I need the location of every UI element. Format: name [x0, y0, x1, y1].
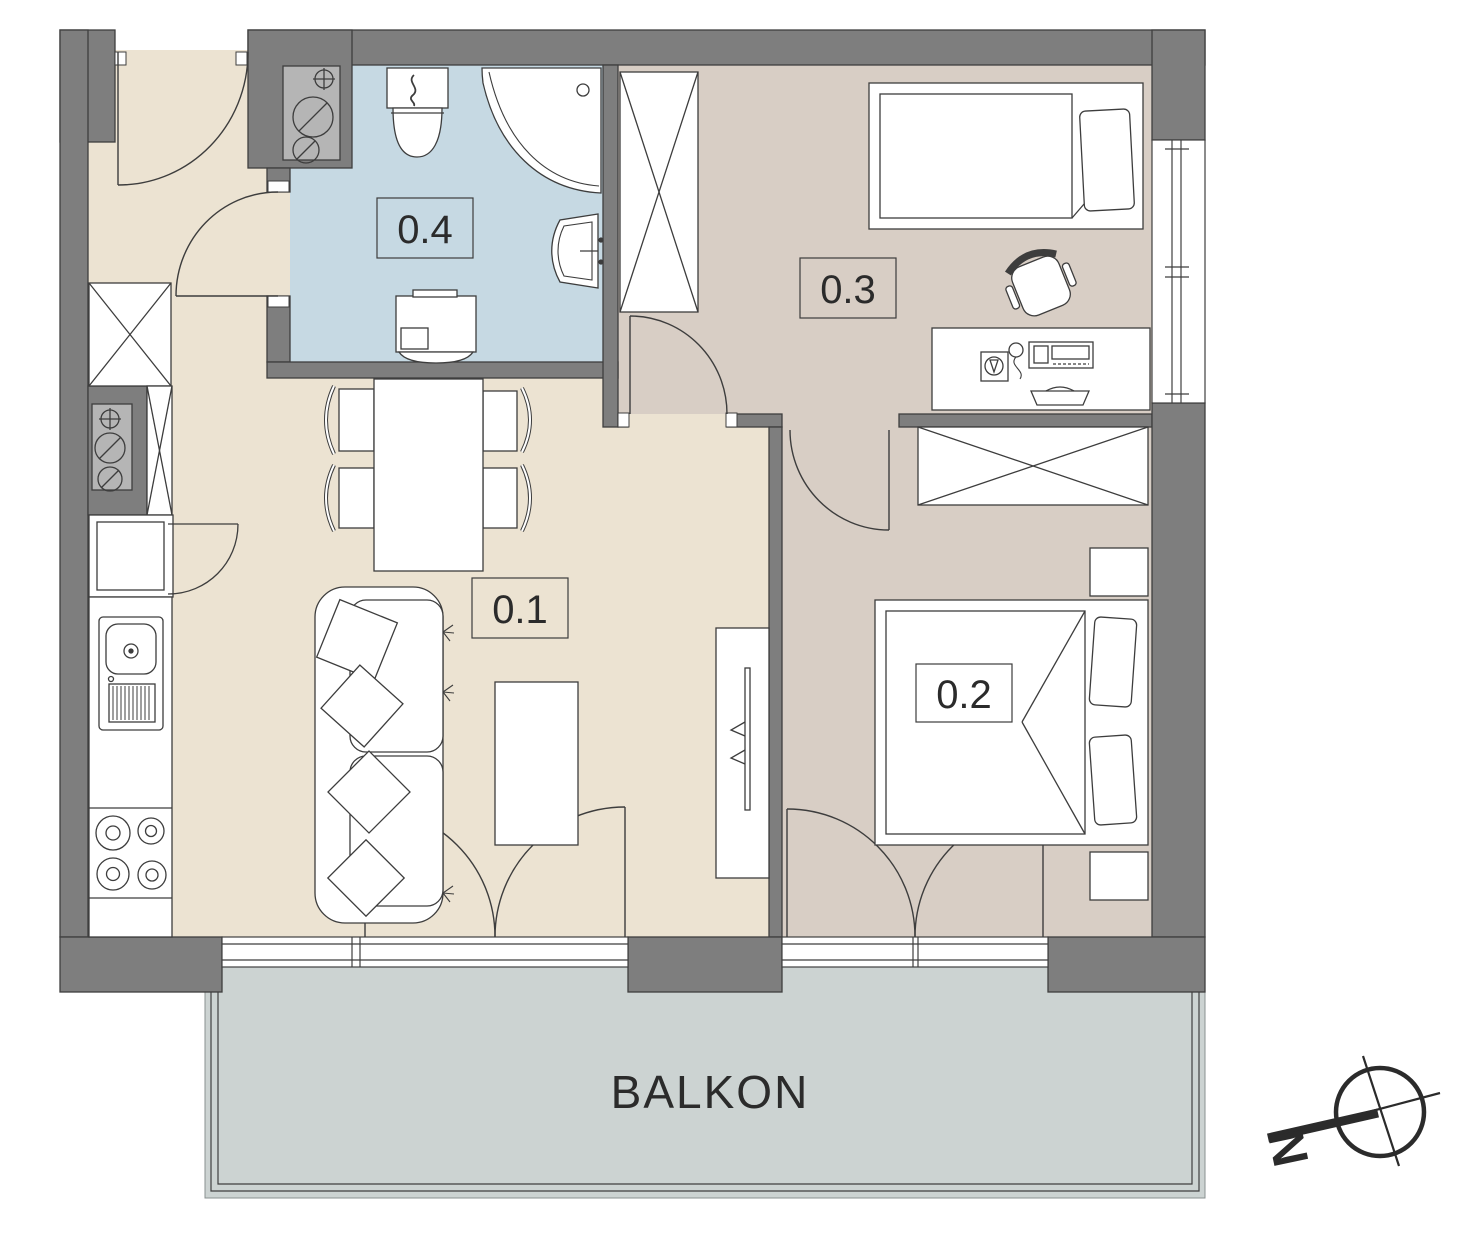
wall-bath-right	[603, 65, 618, 427]
washing-machine-icon	[396, 290, 476, 363]
svg-text:0.3: 0.3	[820, 268, 876, 312]
single-bed-icon	[869, 83, 1143, 229]
wall-band-seg3	[899, 414, 1152, 427]
balcony: BALKON	[205, 967, 1205, 1198]
room-label-0-1: 0.1	[472, 578, 568, 638]
window-right	[1152, 140, 1205, 403]
wall-top	[248, 30, 1205, 65]
room-label-0-2: 0.2	[916, 664, 1012, 722]
kitchen-sink-icon	[99, 617, 163, 730]
floor-plan-page: BALKON	[0, 0, 1482, 1233]
wall-right-lower	[1152, 403, 1205, 937]
wall-left	[60, 30, 88, 937]
tv-lowboard-icon	[716, 628, 769, 878]
nightstand-icon	[1090, 548, 1148, 596]
balcony-door-band-living	[222, 937, 628, 967]
hall-wardrobe-icon	[89, 283, 171, 386]
svg-text:0.2: 0.2	[936, 673, 992, 717]
wall-bottom-left-block	[60, 937, 222, 992]
sofa-icon	[315, 587, 454, 923]
room-label-0-3: 0.3	[800, 258, 896, 318]
nightstand-icon	[1090, 852, 1148, 900]
installation-shaft-kitchen-icon	[92, 404, 132, 491]
wall-divider-0-1-0-2	[769, 427, 782, 937]
tall-cabinet-icon	[147, 386, 172, 515]
washbasin-icon	[552, 214, 603, 288]
wall-bottom-right-block	[1048, 937, 1205, 992]
svg-text:0.1: 0.1	[492, 588, 548, 632]
north-compass-icon: N	[1257, 1056, 1440, 1171]
svg-text:0.4: 0.4	[397, 208, 453, 252]
balcony-label: BALKON	[611, 1066, 810, 1118]
floor-plan: BALKON	[0, 0, 1482, 1233]
room-label-0-4: 0.4	[377, 198, 473, 258]
desk-icon	[932, 328, 1150, 410]
wardrobe-0-2-icon	[918, 427, 1148, 505]
coffee-table-icon	[495, 682, 578, 845]
wardrobe-0-3-icon	[620, 72, 698, 312]
installation-shaft-bath-icon	[283, 66, 340, 163]
wall-right-top-block	[1152, 30, 1205, 140]
dining-table-icon	[374, 379, 483, 571]
wall-bath-bottom	[267, 362, 618, 378]
wall-pier-center	[628, 937, 782, 992]
balcony-door-band-bedroom	[782, 937, 1048, 967]
compass-north-letter: N	[1257, 1125, 1319, 1172]
